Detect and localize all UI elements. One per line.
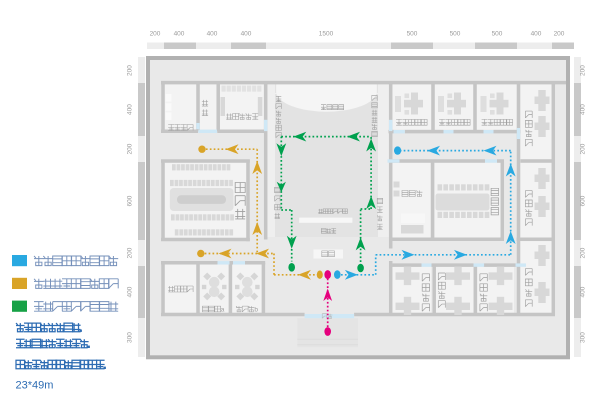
- svg-text:300: 300: [580, 332, 587, 343]
- svg-text:23*49m: 23*49m: [16, 380, 54, 392]
- svg-text:200: 200: [554, 31, 565, 38]
- svg-text:500: 500: [492, 31, 503, 38]
- svg-text:200: 200: [580, 143, 587, 154]
- svg-text:200: 200: [580, 65, 587, 76]
- svg-text:400: 400: [580, 104, 587, 115]
- svg-text:a: a: [221, 307, 225, 314]
- svg-text:200: 200: [127, 143, 134, 154]
- svg-text:400: 400: [127, 104, 134, 115]
- svg-text:200: 200: [150, 31, 161, 38]
- svg-text:400: 400: [580, 286, 587, 297]
- svg-text:1500: 1500: [319, 31, 334, 38]
- svg-text:200: 200: [127, 247, 134, 258]
- svg-text:600: 600: [580, 195, 587, 206]
- svg-text:500: 500: [407, 31, 418, 38]
- svg-text:600: 600: [127, 195, 134, 206]
- svg-text:400: 400: [241, 31, 252, 38]
- svg-text:b: b: [254, 307, 258, 314]
- svg-text:200: 200: [127, 65, 134, 76]
- svg-text:500: 500: [450, 31, 461, 38]
- svg-text:300: 300: [127, 332, 134, 343]
- svg-text:400: 400: [207, 31, 218, 38]
- svg-text:400: 400: [127, 286, 134, 297]
- svg-text:200: 200: [580, 247, 587, 258]
- svg-text:400: 400: [174, 31, 185, 38]
- svg-text:400: 400: [531, 31, 542, 38]
